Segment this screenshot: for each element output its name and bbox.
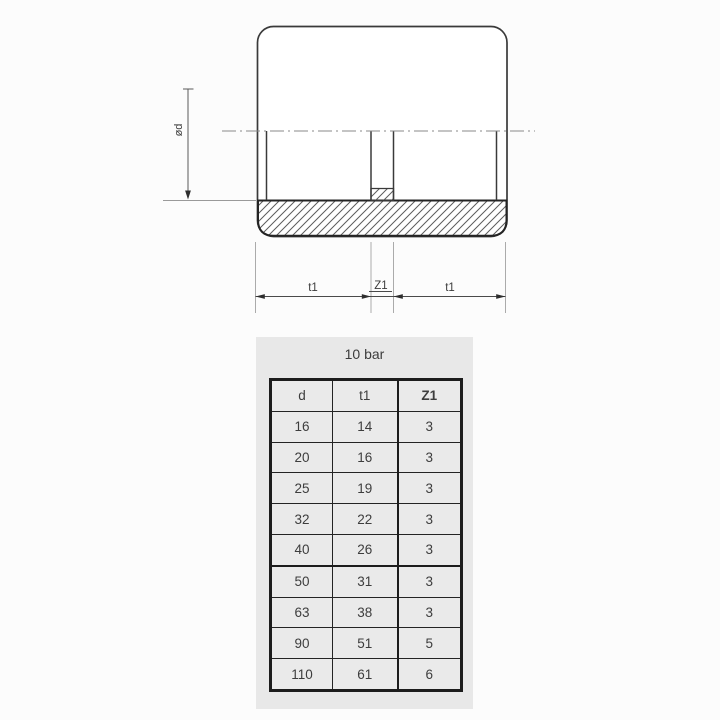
table-header-row: d t1 Z1 <box>271 380 462 412</box>
pressure-rating-title: 10 bar <box>256 346 473 362</box>
table-cell: 25 <box>271 473 333 504</box>
table-cell: 3 <box>398 534 462 565</box>
table-cell: 110 <box>271 659 333 691</box>
table-cell: 63 <box>271 597 333 628</box>
table-cell: 51 <box>333 628 398 659</box>
col-header-d: d <box>271 380 333 412</box>
table-cell: 19 <box>333 473 398 504</box>
table-cell: 31 <box>333 566 398 597</box>
table-cell: 40 <box>271 534 333 565</box>
diameter-dimension: ød <box>163 89 256 201</box>
table-row: 90 51 5 <box>271 628 462 659</box>
table-cell: 61 <box>333 659 398 691</box>
table-cell: 20 <box>271 442 333 473</box>
table-cell: 3 <box>398 566 462 597</box>
table-cell: 26 <box>333 534 398 565</box>
table-cell: 6 <box>398 659 462 691</box>
coupling-body-group <box>222 27 535 237</box>
z1-label: Z1 <box>374 280 387 292</box>
table-cell: 16 <box>271 411 333 442</box>
table-cell: 14 <box>333 411 398 442</box>
table-row: 16 14 3 <box>271 411 462 442</box>
table-cell: 3 <box>398 504 462 535</box>
table-cell: 3 <box>398 597 462 628</box>
table-row: 40 26 3 <box>271 534 462 565</box>
col-header-z1: Z1 <box>398 380 462 412</box>
arrow-right-icon <box>362 294 371 299</box>
table-row: 50 31 3 <box>271 566 462 597</box>
t1-label-right: t1 <box>445 282 455 294</box>
spec-table: d t1 Z1 16 14 3 20 16 3 25 19 <box>269 378 463 692</box>
table-cell: 3 <box>398 442 462 473</box>
table-cell: 38 <box>333 597 398 628</box>
col-header-t1: t1 <box>333 380 398 412</box>
table-row: 20 16 3 <box>271 442 462 473</box>
table-cell: 16 <box>333 442 398 473</box>
page: ød t1 Z1 t1 10 bar d <box>0 0 720 720</box>
t1-label-left: t1 <box>308 282 318 294</box>
length-dimensions: t1 Z1 t1 <box>256 242 506 313</box>
table-row: 25 19 3 <box>271 473 462 504</box>
table-cell: 50 <box>271 566 333 597</box>
table-cell: 22 <box>333 504 398 535</box>
table-row: 63 38 3 <box>271 597 462 628</box>
arrow-left-icon <box>394 294 403 299</box>
hatched-wall-section <box>258 201 507 236</box>
arrow-left-icon <box>256 294 265 299</box>
center-ridge <box>371 189 394 201</box>
table-row: 32 22 3 <box>271 504 462 535</box>
table-row: 110 61 6 <box>271 659 462 691</box>
arrow-right-icon <box>496 294 505 299</box>
spec-panel: 10 bar d t1 Z1 16 14 3 20 <box>256 337 473 709</box>
arrow-down-icon <box>185 191 191 200</box>
table-cell: 3 <box>398 473 462 504</box>
table-cell: 32 <box>271 504 333 535</box>
diameter-label: ød <box>173 124 185 137</box>
table-cell: 5 <box>398 628 462 659</box>
table-cell: 90 <box>271 628 333 659</box>
table-cell: 3 <box>398 411 462 442</box>
